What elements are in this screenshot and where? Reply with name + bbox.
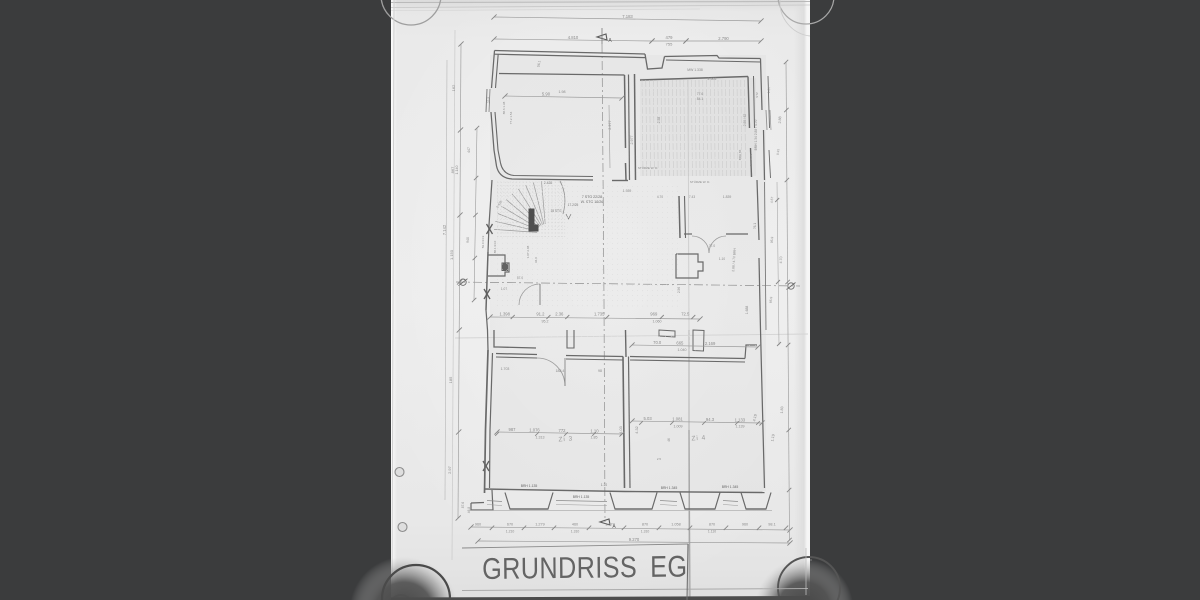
svg-text:4.32: 4.32 xyxy=(635,426,639,433)
svg-text:A: A xyxy=(608,38,612,44)
svg-text:9.270: 9.270 xyxy=(629,537,640,542)
svg-text:1.110: 1.110 xyxy=(708,530,716,534)
svg-text:987: 987 xyxy=(509,427,517,432)
svg-text:479: 479 xyxy=(666,35,674,40)
svg-text:4.70: 4.70 xyxy=(657,195,663,199)
svg-text:1.073: 1.073 xyxy=(605,523,615,527)
svg-text:2.977: 2.977 xyxy=(630,136,634,145)
svg-text:87.6: 87.6 xyxy=(461,502,465,509)
svg-text:1.85: 1.85 xyxy=(591,436,598,440)
svg-text:4.810: 4.810 xyxy=(568,35,579,40)
svg-text:1.19: 1.19 xyxy=(770,434,775,442)
svg-text:4.57: 4.57 xyxy=(770,196,775,203)
svg-text:23.8: 23.8 xyxy=(487,97,491,104)
svg-text:7 STG 22/28: 7 STG 22/28 xyxy=(582,195,602,199)
svg-text:94.0: 94.0 xyxy=(534,257,538,263)
svg-text:BRH 1.34 2.88 / 4.70: BRH 1.34 2.88 / 4.70 xyxy=(754,119,758,150)
svg-text:76.1: 76.1 xyxy=(753,223,757,229)
svg-text:1.210: 1.210 xyxy=(506,530,515,534)
svg-text:7.183: 7.183 xyxy=(622,14,633,19)
svg-text:755: 755 xyxy=(666,42,673,47)
svg-text:1.058: 1.058 xyxy=(671,523,681,527)
svg-text:Zi 3: Zi 3 xyxy=(558,435,573,443)
svg-text:1.07: 1.07 xyxy=(501,287,507,291)
svg-text:2.36: 2.36 xyxy=(555,312,564,317)
svg-text:670: 670 xyxy=(507,523,513,527)
svg-text:94.3: 94.3 xyxy=(706,417,715,422)
svg-text:5.03: 5.03 xyxy=(644,416,653,421)
svg-text:MW 1.338: MW 1.338 xyxy=(687,68,703,72)
svg-text:BRH 1.135: BRH 1.135 xyxy=(573,495,590,499)
svg-text:1.10: 1.10 xyxy=(719,257,725,261)
svg-text:1.10: 1.10 xyxy=(601,483,607,487)
svg-text:5.90: 5.90 xyxy=(542,92,551,97)
svg-text:188.4: 188.4 xyxy=(556,369,565,373)
svg-text:1.83: 1.83 xyxy=(780,406,784,413)
svg-text:77.2 1.54: 77.2 1.54 xyxy=(509,111,513,124)
svg-text:1.009: 1.009 xyxy=(674,425,683,429)
svg-text:2.977: 2.977 xyxy=(608,120,612,130)
svg-text:1.939: 1.939 xyxy=(623,189,632,193)
svg-text:2.88/4.70: 2.88/4.70 xyxy=(749,153,753,166)
svg-text:447: 447 xyxy=(467,147,471,153)
svg-text:46: 46 xyxy=(667,438,671,442)
svg-text:1.150: 1.150 xyxy=(449,249,454,260)
svg-text:88.6 1.38: 88.6 1.38 xyxy=(502,101,506,114)
svg-text:BRH 1.135: BRH 1.135 xyxy=(521,484,538,488)
svg-text:1.310: 1.310 xyxy=(641,530,650,534)
svg-text:1.57: 1.57 xyxy=(767,86,772,93)
svg-text:1.133: 1.133 xyxy=(735,418,746,423)
svg-text:1.040: 1.040 xyxy=(678,348,687,352)
svg-text:960: 960 xyxy=(742,523,748,527)
svg-text:7.43: 7.43 xyxy=(689,195,695,199)
svg-text:4.70: 4.70 xyxy=(779,256,783,263)
svg-text:772: 772 xyxy=(559,428,567,433)
svg-text:940: 940 xyxy=(466,237,470,243)
svg-text:2.790: 2.790 xyxy=(718,36,729,41)
svg-text:72.5: 72.5 xyxy=(681,312,690,317)
svg-text:STÜRZE W. D.: STÜRZE W. D. xyxy=(638,166,658,170)
svg-text:960: 960 xyxy=(475,523,481,527)
svg-text:1.703: 1.703 xyxy=(501,367,510,371)
svg-text:77.6: 77.6 xyxy=(697,92,704,96)
svg-text:1.398: 1.398 xyxy=(499,312,510,317)
svg-text:1.313: 1.313 xyxy=(536,436,545,440)
svg-text:STZ: STZ xyxy=(755,92,759,98)
svg-text:1.07 2.08: 1.07 2.08 xyxy=(526,245,530,258)
svg-text:STÜRZE W. D.: STÜRZE W. D. xyxy=(690,180,710,184)
svg-text:Zi 4: Zi 4 xyxy=(691,434,706,442)
svg-text:2.96: 2.96 xyxy=(677,287,681,293)
svg-text:95.2: 95.2 xyxy=(542,320,549,324)
svg-text:70.0: 70.0 xyxy=(653,340,662,345)
svg-text:1.139: 1.139 xyxy=(736,425,745,429)
svg-text:BRH 1.345: BRH 1.345 xyxy=(661,486,678,490)
svg-text:BRH 1.345: BRH 1.345 xyxy=(722,485,739,489)
svg-text:17.2/25: 17.2/25 xyxy=(568,203,579,207)
svg-text:8.91: 8.91 xyxy=(776,148,781,155)
svg-text:1.688: 1.688 xyxy=(745,306,749,315)
svg-text:870: 870 xyxy=(642,523,648,527)
svg-text:46.8: 46.8 xyxy=(467,507,471,514)
svg-text:2.5: 2.5 xyxy=(657,457,662,461)
svg-text:59.0 94.9: 59.0 94.9 xyxy=(481,235,485,248)
svg-text:84.1: 84.1 xyxy=(697,97,704,101)
svg-text:1.98: 1.98 xyxy=(559,90,566,94)
svg-text:98: 98 xyxy=(598,369,602,373)
svg-text:88.1 94.0: 88.1 94.0 xyxy=(493,240,497,253)
svg-text:57.0: 57.0 xyxy=(517,276,523,280)
svg-text:1.140: 1.140 xyxy=(455,166,459,175)
svg-text:77.0: 77.0 xyxy=(709,244,715,248)
svg-text:969: 969 xyxy=(650,312,658,317)
svg-text:1.060: 1.060 xyxy=(653,320,662,324)
svg-text:162: 162 xyxy=(451,84,456,91)
svg-text:1.279: 1.279 xyxy=(535,523,545,527)
svg-text:4.03: 4.03 xyxy=(619,426,623,433)
svg-text:185: 185 xyxy=(448,376,453,383)
svg-text:98.1: 98.1 xyxy=(768,523,775,527)
svg-text:1.081: 1.081 xyxy=(672,417,683,422)
svg-text:2.97: 2.97 xyxy=(447,465,452,474)
svg-text:BRH 86: BRH 86 xyxy=(738,149,742,160)
svg-text:2.169: 2.169 xyxy=(705,341,716,346)
svg-text:2.502: 2.502 xyxy=(708,77,717,81)
svg-text:1.310: 1.310 xyxy=(571,530,580,534)
svg-text:95.9: 95.9 xyxy=(769,296,774,303)
svg-text:665: 665 xyxy=(676,341,684,346)
svg-text:2.88: 2.88 xyxy=(778,116,782,123)
svg-text:1.076: 1.076 xyxy=(529,427,540,432)
svg-text:2.58: 2.58 xyxy=(657,117,661,124)
svg-text:870: 870 xyxy=(709,523,715,527)
svg-text:91.2: 91.2 xyxy=(536,312,545,317)
svg-text:95.9: 95.9 xyxy=(770,236,774,243)
svg-text:460: 460 xyxy=(572,523,578,527)
svg-text:1.735: 1.735 xyxy=(594,312,605,317)
svg-text:1.839: 1.839 xyxy=(723,195,732,199)
